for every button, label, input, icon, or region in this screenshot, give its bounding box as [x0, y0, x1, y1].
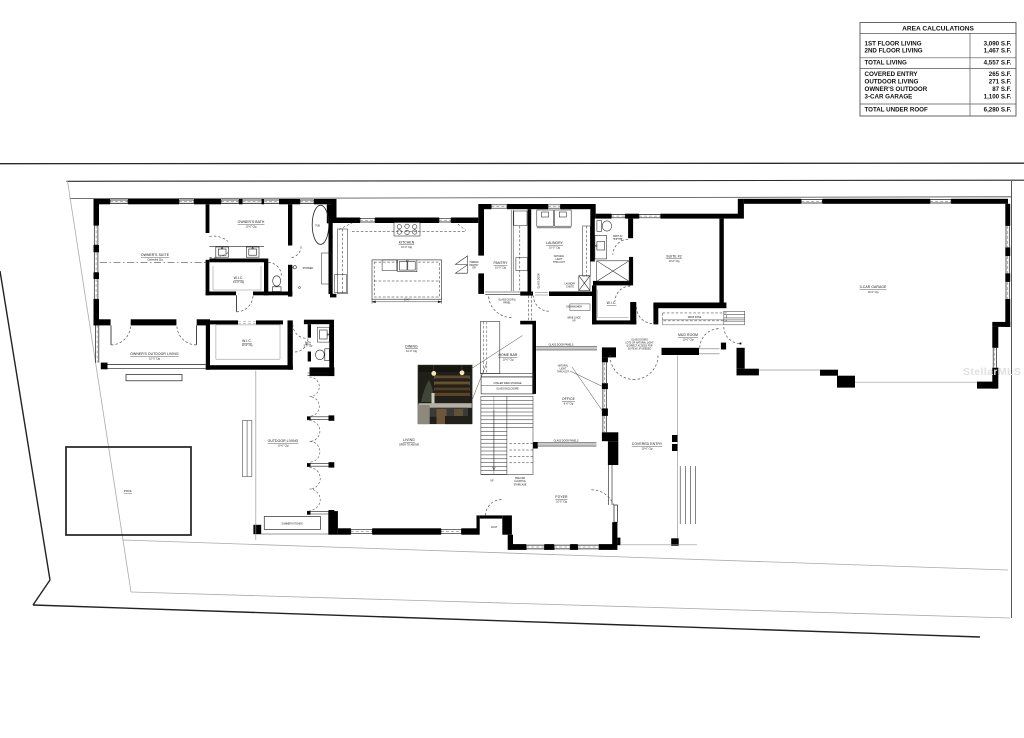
- svg-text:PRE-FAB: PRE-FAB: [515, 477, 525, 480]
- svg-text:NATURAL: NATURAL: [558, 365, 569, 368]
- svg-text:10'-0" Clg: 10'-0" Clg: [233, 281, 244, 284]
- svg-text:LIVING: LIVING: [403, 438, 415, 442]
- svg-text:W.I.C.: W.I.C.: [607, 301, 617, 305]
- svg-text:DR: DR: [472, 268, 476, 270]
- svg-text:GLASS DOOR PANELS: GLASS DOOR PANELS: [554, 439, 579, 442]
- svg-text:SUITE #2, IF NEEDED: SUITE #2, IF NEEDED: [628, 349, 652, 351]
- svg-text:PANEL: PANEL: [503, 302, 511, 305]
- svg-text:265 S.F.: 265 S.F.: [989, 71, 1012, 78]
- svg-text:9'-0" Clg: 9'-0" Clg: [304, 346, 313, 348]
- svg-text:FLOATING: FLOATING: [514, 480, 526, 483]
- svg-text:W.I.C.: W.I.C.: [234, 276, 244, 280]
- svg-text:PANTRY: PANTRY: [493, 261, 508, 265]
- svg-text:10'-0" Clg: 10'-0" Clg: [406, 350, 417, 353]
- svg-text:10'-0" Clg: 10'-0" Clg: [149, 358, 160, 361]
- svg-text:LOTS OF NATURAL LIGHT: LOTS OF NATURAL LIGHT: [625, 342, 654, 345]
- svg-text:COAT: COAT: [491, 526, 498, 529]
- svg-text:10'-0" Clg: 10'-0" Clg: [683, 338, 694, 341]
- svg-text:BATH: BATH: [305, 342, 311, 345]
- svg-text:10'-0" Clg: 10'-0" Clg: [495, 266, 506, 269]
- svg-text:W.I.C.: W.I.C.: [242, 339, 252, 343]
- svg-text:HIDDEN: HIDDEN: [470, 262, 479, 264]
- svg-text:TOTAL LIVING: TOTAL LIVING: [865, 60, 907, 67]
- svg-text:SUMMER KITCHEN: SUMMER KITCHEN: [282, 524, 303, 526]
- svg-text:DISHWASHER: DISHWASHER: [566, 306, 582, 309]
- svg-text:10'-0" Clg: 10'-0" Clg: [401, 246, 412, 249]
- svg-text:FOYER: FOYER: [555, 495, 568, 499]
- svg-text:OPEN TO ABOVE: OPEN TO ABOVE: [399, 444, 420, 447]
- svg-text:OWNER'S SUITE: OWNER'S SUITE: [141, 253, 170, 257]
- svg-text:OUTDOOR LIVING: OUTDOOR LIVING: [865, 79, 919, 86]
- svg-text:9'-0" Clg: 9'-0" Clg: [613, 239, 622, 241]
- svg-text:TOTAL UNDER ROOF: TOTAL UNDER ROOF: [865, 107, 928, 114]
- svg-text:CHUTE: CHUTE: [566, 287, 574, 289]
- svg-text:POOL: POOL: [124, 489, 133, 493]
- svg-text:UP: UP: [490, 481, 494, 483]
- svg-text:3-CAR GARAGE: 3-CAR GARAGE: [860, 285, 887, 289]
- svg-text:3-CAR GARAGE: 3-CAR GARAGE: [865, 93, 913, 100]
- svg-text:OWNER'S BATH: OWNER'S BATH: [238, 220, 265, 224]
- svg-text:COVERED ENTRY: COVERED ENTRY: [865, 71, 919, 78]
- svg-text:& DIRECT ACCESS FOR: & DIRECT ACCESS FOR: [626, 345, 652, 348]
- svg-text:PANTRY: PANTRY: [469, 264, 479, 267]
- svg-text:OWNER'S OUTDOOR: OWNER'S OUTDOOR: [865, 86, 928, 93]
- svg-text:TUB: TUB: [315, 225, 320, 227]
- svg-text:MUD ROOM: MUD ROOM: [678, 333, 698, 337]
- svg-text:10'-0" Clg: 10'-0" Clg: [868, 291, 879, 294]
- svg-text:2ND FLOOR LIVING: 2ND FLOOR LIVING: [865, 47, 923, 54]
- svg-text:LIGHT: LIGHT: [560, 369, 567, 371]
- svg-text:10'-0" Clg: 10'-0" Clg: [669, 260, 680, 263]
- svg-text:LAUNDRY: LAUNDRY: [546, 241, 563, 245]
- svg-text:KITCHEN: KITCHEN: [399, 241, 415, 245]
- svg-text:HOME BAR: HOME BAR: [499, 353, 518, 357]
- svg-text:10'-0" Clg: 10'-0" Clg: [556, 501, 567, 504]
- svg-text:10'-0" Clg: 10'-0" Clg: [246, 226, 257, 229]
- svg-text:NATURAL: NATURAL: [554, 255, 565, 258]
- svg-text:9'-0" Clg: 9'-0" Clg: [564, 402, 574, 405]
- svg-text:DINING: DINING: [405, 345, 418, 349]
- svg-text:271 S.F.: 271 S.F.: [989, 79, 1012, 86]
- svg-text:CHILLED WINE STORAGE: CHILLED WINE STORAGE: [493, 382, 522, 385]
- svg-text:87 S.F.: 87 S.F.: [992, 86, 1012, 93]
- svg-text:1,100 S.F.: 1,100 S.F.: [984, 93, 1012, 100]
- svg-text:OWNER'S OUTDOOR LIVING: OWNER'S OUTDOOR LIVING: [130, 352, 179, 356]
- svg-text:GLASS DOORS: GLASS DOORS: [631, 339, 648, 342]
- svg-text:10'-0" Clg: 10'-0" Clg: [642, 448, 653, 451]
- svg-text:AREA CALCULATIONS: AREA CALCULATIONS: [902, 26, 974, 33]
- svg-text:SUITE #2: SUITE #2: [666, 255, 682, 259]
- svg-text:STAIRCASE: STAIRCASE: [514, 483, 527, 486]
- svg-text:GLASS DOOR: GLASS DOOR: [538, 273, 541, 289]
- svg-text:OUTDOOR LIVING: OUTDOOR LIVING: [268, 439, 299, 443]
- svg-text:BATH #2: BATH #2: [613, 235, 623, 238]
- svg-text:10'-0" Clg: 10'-0" Clg: [503, 359, 514, 362]
- svg-text:UP: UP: [572, 321, 576, 323]
- svg-text:GLASS ENCLOSURE: GLASS ENCLOSURE: [496, 388, 519, 391]
- svg-text:LAUNDRY: LAUNDRY: [565, 283, 576, 286]
- svg-text:GLASS DOOR PANELS: GLASS DOOR PANELS: [549, 343, 574, 346]
- svg-text:DROP ZONE: DROP ZONE: [688, 317, 702, 319]
- svg-text:1,467 S.F.: 1,467 S.F.: [984, 47, 1012, 54]
- svg-text:6,280 S.F.: 6,280 S.F.: [984, 107, 1012, 114]
- svg-text:LIGHT: LIGHT: [556, 259, 563, 261]
- svg-text:Cathedral Clg: Cathedral Clg: [147, 259, 163, 262]
- svg-text:10'-0" Clg: 10'-0" Clg: [242, 344, 253, 347]
- svg-text:COVERED ENTRY: COVERED ENTRY: [632, 442, 663, 446]
- svg-text:THRU-OUT: THRU-OUT: [553, 262, 566, 264]
- svg-text:THRU-OUT: THRU-OUT: [557, 372, 570, 374]
- svg-text:GLASS DOOR &: GLASS DOOR &: [498, 299, 516, 302]
- svg-text:SHOWER: SHOWER: [303, 268, 314, 270]
- svg-text:4,557 S.F.: 4,557 S.F.: [984, 60, 1012, 67]
- svg-text:10'-0" Clg: 10'-0" Clg: [549, 246, 560, 249]
- svg-text:WINE JUICE: WINE JUICE: [567, 318, 581, 320]
- svg-text:StellarMLS: StellarMLS: [963, 366, 1021, 378]
- svg-text:10'-0" Clg: 10'-0" Clg: [278, 445, 289, 448]
- svg-text:OFFICE: OFFICE: [562, 397, 576, 401]
- svg-text:15'-6": 15'-6": [404, 300, 410, 302]
